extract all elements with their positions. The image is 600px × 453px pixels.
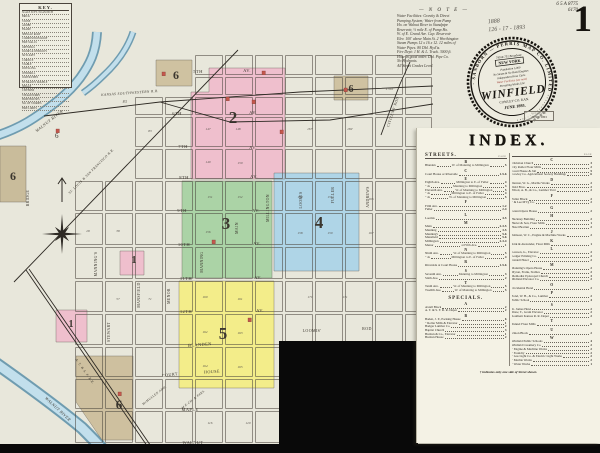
index-entry: Lindell Hotel2 (512, 259, 593, 263)
map-label: 12TH (180, 309, 193, 314)
map-label: ROD (362, 326, 372, 331)
map-label: BRIDGE (26, 189, 30, 206)
building-mark (212, 240, 215, 244)
building-mark (262, 71, 265, 75)
index-entry: Union Block2 (512, 332, 593, 336)
block-number: 154 (297, 195, 302, 199)
index-entry: BlandenW. of Manning to Millington5 (425, 164, 507, 168)
index-footnote: † indicates only one side of Street show… (423, 370, 594, 374)
void-region-1 (0, 444, 600, 453)
handwritten-annotation: 1888 126 - 17 - 1893 (487, 16, 525, 35)
block-number: 152 (237, 195, 242, 199)
block-number: 151 (207, 195, 212, 199)
map-label: AV. (249, 110, 257, 115)
index-entry: Southern Kansas R. R. Depot2 (512, 315, 593, 319)
district-5-number: 5 (219, 324, 228, 343)
block-number: 28 (86, 229, 90, 233)
index-entry: Grand Opera House2 (512, 210, 593, 214)
block-number: 158 (297, 231, 302, 235)
index-entry: “ doMillington to E. of Fuller4 (425, 256, 507, 260)
block-number: 170 (307, 295, 312, 299)
index-entry: Johnson, W. C., Engine & Machine Works2 (512, 234, 593, 238)
block-number: 160 (202, 295, 207, 299)
note-lines: Water Facilities: Gravity & DirectPumpin… (397, 14, 491, 68)
index-entry: Twelfth Ave.W. of Manning to Millington5 (425, 289, 507, 293)
block-number: 167' (307, 127, 313, 131)
block-number: 167 (368, 231, 373, 235)
index-left-column: STREETS. PAGE BBlandenW. of Manning to M… (423, 153, 509, 366)
district-1-a-number: 1 (132, 255, 137, 266)
map-label: LOOMIS' (303, 328, 322, 333)
map-label: MANSFIELD (137, 282, 141, 307)
block-number: 159 (327, 231, 332, 235)
district-6-top-number: 6 (173, 68, 179, 82)
index-entry: “ doW. of Manning to Millington5 (425, 196, 507, 200)
block-number: 147 (205, 127, 210, 131)
page-label-right: PAGE (584, 153, 592, 156)
key-row: FIRE LIMITS (22, 107, 69, 111)
building-mark (248, 318, 251, 322)
block-number: 148 (235, 127, 240, 131)
index-entry: Midland Elevator Co.2 (512, 278, 593, 282)
specials-list: AAxtell Block2A. T. & S. F. R. R. Depot2… (425, 302, 507, 341)
block-number: 155 (327, 195, 332, 199)
map-label: AV. (243, 68, 251, 73)
map-label: MANNING'S (94, 252, 98, 277)
map-label: 1700' (385, 87, 394, 91)
district-4-number: 4 (315, 213, 324, 232)
map-key-legend: KEY. SCALE 50 FT. TO AN INCHBRICKSTONEAD… (19, 3, 72, 88)
block-number: 162 (202, 330, 207, 334)
map-label: AV. (256, 308, 264, 313)
index-entry: Menorat Fifth Ave.1 (425, 244, 507, 248)
index-right-column: PAGE CChristian Church3City Roller Flour… (509, 153, 595, 366)
date-stamp-date: JUN 8 1893 (525, 115, 553, 119)
block-number: 169' (347, 127, 353, 131)
block-number: 161 (237, 297, 242, 301)
district-3-number: 3 (222, 214, 231, 233)
block-number: 164 (202, 364, 207, 368)
index-entry: Court House or Riverside1-5-6 (425, 173, 507, 177)
map-label: 11TH (180, 276, 192, 281)
index-entry: Brettun House2 (425, 336, 507, 340)
index-entry: Fuller2-4 (425, 208, 507, 212)
map-label: AV. (249, 145, 257, 150)
map-label: STEWART (107, 322, 111, 342)
library-date-stamp: RECEIVED JUN 8 1893 (524, 111, 554, 121)
void-region-0 (279, 341, 418, 447)
map-label: AV. (254, 275, 262, 280)
specials-heading: SPECIALS. (425, 296, 507, 301)
index-entry: Cowley Co. Agricultural Society Building… (512, 173, 593, 177)
sheet-number: 1 (574, 0, 593, 41)
map-label: AV. (250, 174, 258, 179)
page-label-left: PAGE (498, 155, 506, 158)
block-number: 38 (116, 229, 120, 233)
building-mark (56, 129, 59, 133)
building-mark (226, 97, 229, 101)
map-label: 6TH (172, 111, 182, 116)
map-label: 5TH (193, 69, 203, 74)
building-mark (162, 72, 165, 76)
index-entry: Elliott, A. B., & Co., Lumber Yard2 (512, 189, 593, 193)
map-label: 6 (55, 132, 59, 140)
index-entry: Riverside at Court House1-5-6 (425, 264, 507, 268)
note-line: All Street Grades Level. (397, 64, 491, 69)
district-2-number: 2 (229, 108, 238, 127)
block-number: 150 (237, 161, 242, 165)
block-number: 165 (237, 365, 242, 369)
building-mark (344, 88, 347, 92)
index-entry: Occidental Hotel2 (512, 287, 593, 291)
index-columns: STREETS. PAGE BBlandenW. of Manning to M… (423, 153, 594, 366)
building-mark (280, 130, 283, 134)
map-label: AV. (253, 241, 261, 246)
block-number: 163 (237, 331, 242, 335)
map-label: 8TH (179, 175, 189, 180)
map-label: MILLINGTON (266, 194, 270, 222)
block-number: 83 (148, 129, 152, 133)
building-mark (252, 100, 255, 104)
note-block: — N O T E — Water Facilities: Gravity & … (397, 8, 491, 68)
streets-heading: STREETS. (425, 153, 457, 158)
block-number: 171 (342, 295, 347, 299)
key-rows: SCALE 50 FT. TO AN INCHBRICKSTONEADOBEFR… (22, 11, 69, 111)
block-number: 120 (245, 421, 250, 425)
map-label: 9TH (177, 208, 187, 213)
index-entry: Hotel Brettun2 (512, 226, 593, 230)
block-number: 166 (368, 197, 373, 201)
map-label: 7TH (178, 144, 188, 149)
index-entry: Loomis4-5 (425, 217, 507, 221)
index-entry: “ & Lee M'f'g Co.2 (512, 201, 593, 205)
map-label: 83 (123, 100, 127, 104)
sanborn-map-sheet: 2345666611WALNUT RIVERWALNUT RIVERKANSAS… (0, 0, 600, 453)
block-number: 71 (148, 297, 152, 301)
map-label: MANNING (200, 251, 204, 272)
index-entry: Kirk & Alexander, Flour Mills1 (512, 243, 593, 247)
index-entry: Public School4 (512, 299, 593, 303)
map-label: AV. (252, 208, 260, 213)
map-label: MAIN (235, 222, 239, 234)
index-title: INDEX. (423, 132, 594, 150)
index-sheet: INDEX. STREETS. PAGE BBlandenW. of Manni… (416, 128, 600, 443)
district-6-west-number: 6 (10, 169, 16, 183)
building-mark (118, 392, 121, 396)
streets-list: BBlandenW. of Manning to Millington5CCou… (425, 160, 507, 293)
map-label: MENOR (167, 288, 171, 304)
district-1-b-number: 1 (69, 319, 74, 330)
block-number: 57 (116, 297, 120, 301)
index-buildings-list: CChristian Church3City Roller Flour Mill… (512, 158, 593, 366)
index-entry: “ Water Works1 (512, 363, 593, 367)
note-title: — N O T E — (397, 8, 491, 13)
block-number: 116 (208, 421, 213, 425)
index-entry: Tunnel Flour Mills6 (512, 323, 593, 327)
map-label: 10TH (178, 242, 191, 247)
index-entry: A. T. & S. F. R. R. Depot2 (425, 309, 507, 313)
block-number: 149 (205, 160, 210, 164)
block-number: 156 (205, 230, 210, 234)
index-entry: Sixth Ave.2 (425, 277, 507, 281)
